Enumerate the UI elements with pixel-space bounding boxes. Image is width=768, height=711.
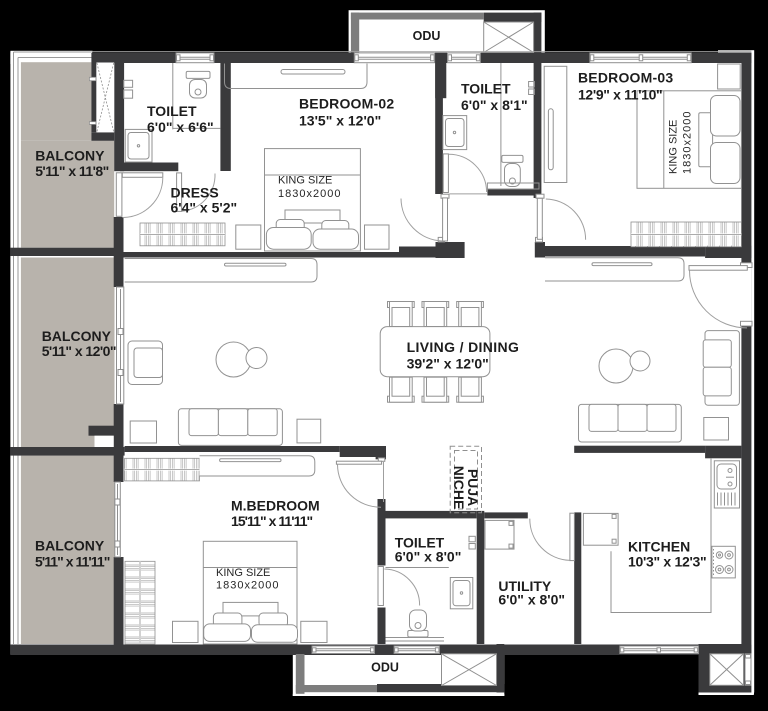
svg-text:1830x2000: 1830x2000 [216,580,279,592]
svg-text:BALCONY: BALCONY [42,328,112,344]
svg-text:12'9" x 11'10": 12'9" x 11'10" [578,86,662,102]
svg-text:6'0" x 8'1": 6'0" x 8'1" [461,97,528,113]
svg-text:5'11" x 11'11": 5'11" x 11'11" [35,553,110,569]
svg-text:ODU: ODU [371,661,399,675]
svg-text:BEDROOM-02: BEDROOM-02 [299,96,394,112]
svg-text:KITCHEN: KITCHEN [628,538,690,554]
svg-text:1830x2000: 1830x2000 [682,111,694,174]
svg-text:6'0" x 6'6": 6'0" x 6'6" [147,119,214,135]
svg-text:M.BEDROOM: M.BEDROOM [231,497,320,513]
svg-text:BEDROOM-03: BEDROOM-03 [578,69,673,85]
svg-text:39'2" x 12'0": 39'2" x 12'0" [407,355,489,371]
svg-text:15'11" x 11'11": 15'11" x 11'11" [231,513,313,529]
svg-text:TOILET: TOILET [461,80,511,96]
svg-text:13'5" x 12'0": 13'5" x 12'0" [299,112,381,128]
svg-text:NICHE: NICHE [451,466,467,510]
svg-text:1830x2000: 1830x2000 [278,188,341,200]
svg-text:KING SIZE: KING SIZE [668,120,680,174]
svg-text:6'0" x 8'0": 6'0" x 8'0" [498,592,565,608]
svg-text:5'11" x 11'8": 5'11" x 11'8" [35,163,109,179]
svg-text:6'0" x 8'0": 6'0" x 8'0" [395,548,462,564]
svg-text:LIVING / DINING: LIVING / DINING [407,339,520,355]
svg-text:KING SIZE: KING SIZE [278,175,332,187]
svg-text:TOILET: TOILET [147,103,197,119]
svg-text:BALCONY: BALCONY [35,538,105,554]
svg-text:BALCONY: BALCONY [35,147,105,163]
svg-text:6'4" x 5'2": 6'4" x 5'2" [171,200,238,216]
svg-text:10'3" x 12'3": 10'3" x 12'3" [628,553,706,569]
svg-text:5'11" x 12'0": 5'11" x 12'0" [42,343,116,359]
svg-text:ODU: ODU [413,29,441,43]
svg-text:KING SIZE: KING SIZE [216,567,270,579]
svg-text:DRESS: DRESS [171,184,219,200]
